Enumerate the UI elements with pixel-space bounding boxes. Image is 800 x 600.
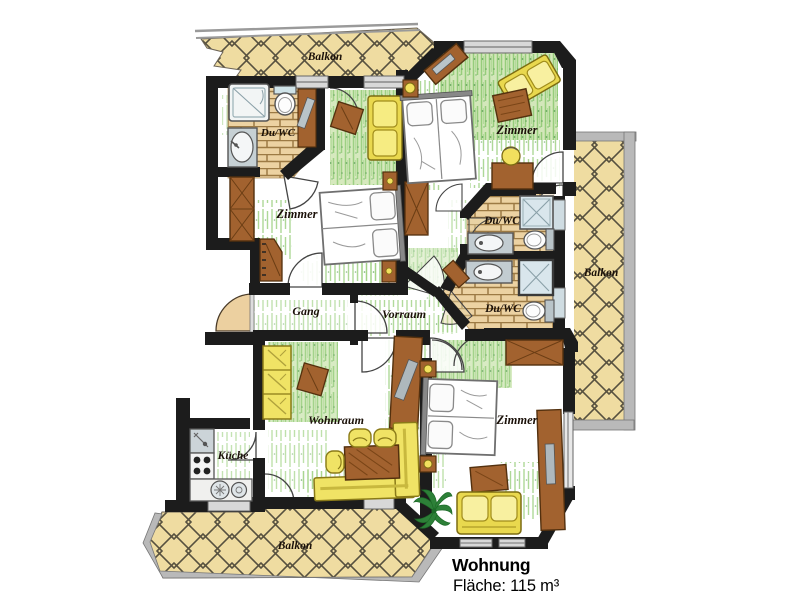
svg-text:Wohnraum: Wohnraum xyxy=(308,413,364,427)
svg-text:Fläche: 115 m³: Fläche: 115 m³ xyxy=(453,577,560,595)
svg-text:Du/WC: Du/WC xyxy=(483,215,520,227)
svg-text:Wohnung: Wohnung xyxy=(452,555,530,575)
svg-text:Zimmer: Zimmer xyxy=(276,207,318,221)
svg-text:Balkon: Balkon xyxy=(583,267,619,279)
svg-text:Du/WC: Du/WC xyxy=(484,303,521,315)
svg-text:Vorraum: Vorraum xyxy=(382,307,426,321)
svg-text:Balkon: Balkon xyxy=(277,540,313,552)
svg-text:Zimmer: Zimmer xyxy=(496,123,538,137)
svg-text:Gang: Gang xyxy=(292,304,319,318)
svg-text:Zimmer: Zimmer xyxy=(496,413,538,427)
svg-text:Balkon: Balkon xyxy=(307,51,343,63)
svg-text:Küche: Küche xyxy=(217,450,249,462)
svg-text:Du/WC: Du/WC xyxy=(260,127,296,139)
